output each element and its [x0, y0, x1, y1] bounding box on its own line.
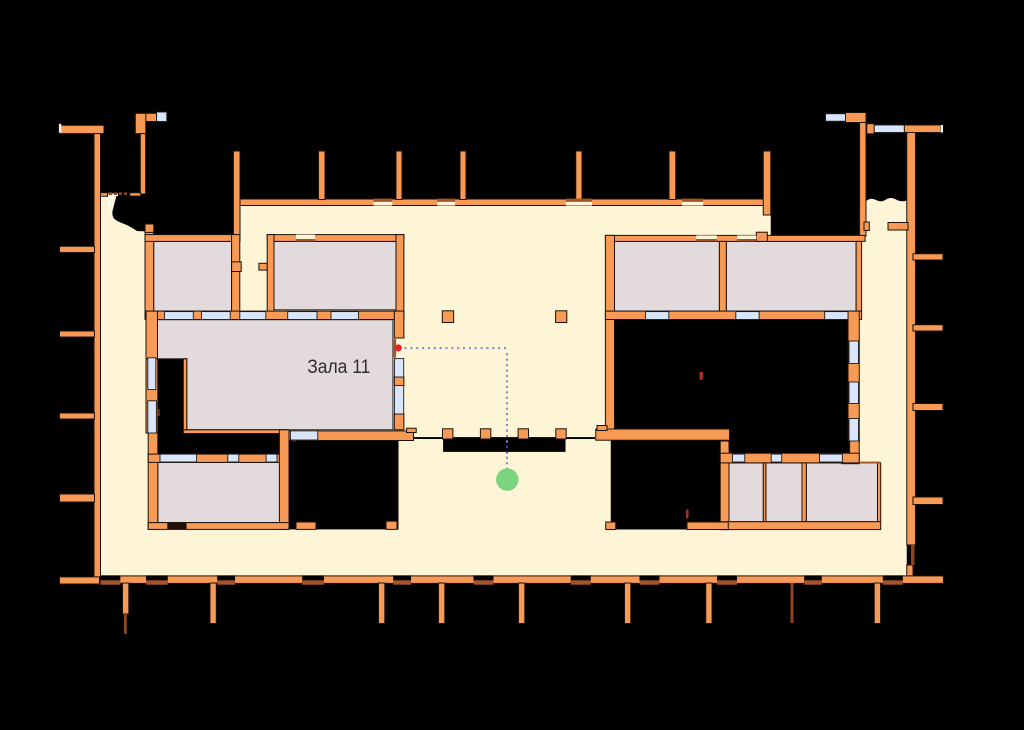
svg-text:Зала 11: Зала 11 — [307, 356, 370, 378]
